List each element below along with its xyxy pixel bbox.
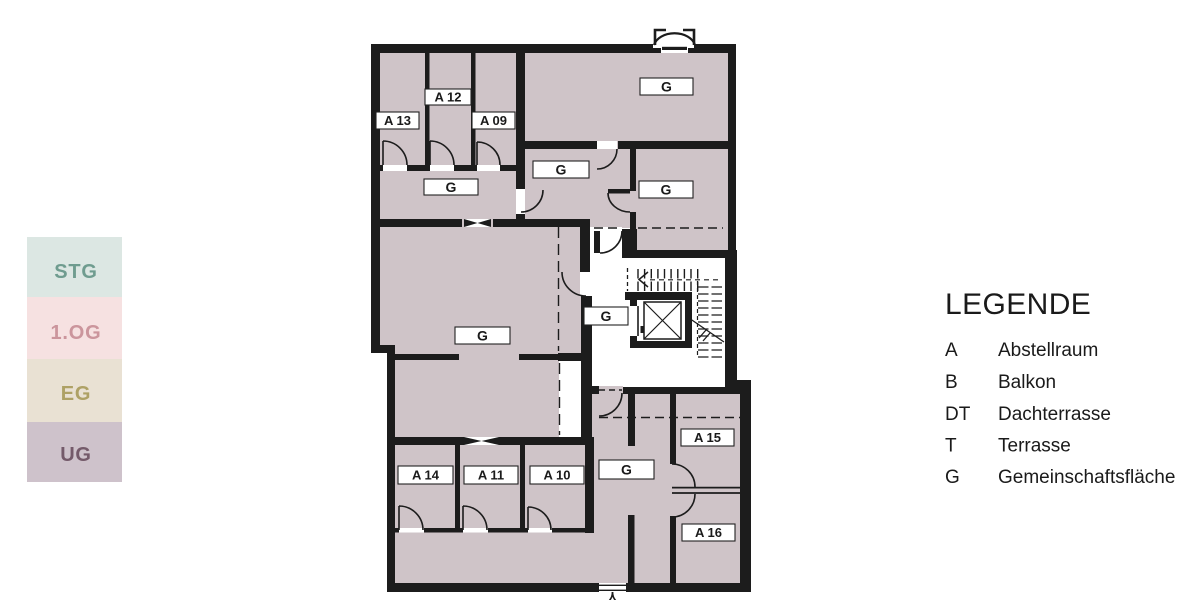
svg-text:A 11: A 11 [478, 468, 504, 483]
svg-text:G: G [601, 308, 612, 324]
svg-text:Balkon: Balkon [998, 372, 1056, 393]
svg-text:A 16: A 16 [695, 525, 722, 540]
svg-text:Abstellraum: Abstellraum [998, 340, 1098, 361]
svg-text:A 13: A 13 [384, 113, 411, 128]
svg-text:A: A [945, 340, 958, 361]
svg-text:Dachterrasse: Dachterrasse [998, 404, 1111, 425]
svg-text:A 09: A 09 [480, 113, 507, 128]
svg-text:A 15: A 15 [694, 430, 721, 445]
svg-text:B: B [945, 372, 958, 393]
svg-text:T: T [945, 436, 957, 457]
svg-text:G: G [621, 462, 632, 478]
svg-text:A 10: A 10 [544, 468, 571, 483]
svg-text:UG: UG [60, 444, 92, 466]
svg-text:G: G [446, 179, 457, 195]
svg-text:G: G [477, 328, 488, 344]
svg-text:Terrasse: Terrasse [998, 436, 1071, 457]
svg-text:G: G [661, 79, 672, 95]
svg-text:A 12: A 12 [435, 90, 462, 105]
svg-text:1.OG: 1.OG [51, 322, 102, 344]
svg-text:G: G [556, 162, 567, 178]
svg-text:Gemeinschaftsfläche: Gemeinschaftsfläche [998, 467, 1175, 488]
svg-text:LEGENDE: LEGENDE [945, 288, 1091, 321]
svg-text:G: G [661, 182, 672, 198]
svg-text:G: G [945, 467, 960, 488]
svg-text:DT: DT [945, 404, 971, 425]
svg-text:STG: STG [54, 261, 98, 283]
svg-text:EG: EG [61, 383, 92, 405]
svg-text:A 14: A 14 [412, 468, 440, 483]
